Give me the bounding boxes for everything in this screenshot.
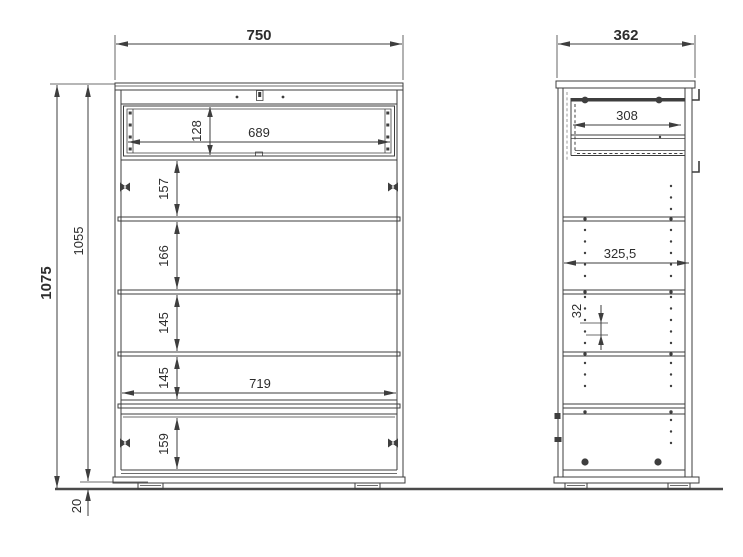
shelf-pin-hole bbox=[670, 430, 672, 432]
dim-label-drawer-height: 128 bbox=[189, 120, 204, 142]
shelf-pin-hole bbox=[584, 330, 586, 332]
shelf-board bbox=[563, 290, 685, 294]
dimension-section-5: 159 bbox=[156, 418, 180, 469]
shelf-pin-hole bbox=[584, 275, 586, 277]
dim-label-section-3: 145 bbox=[156, 312, 171, 334]
shelf-pin-hole bbox=[670, 252, 672, 254]
dimension-width: 750 bbox=[115, 27, 403, 80]
shelf-pin-hole bbox=[670, 275, 672, 277]
shelf-pin-hole bbox=[584, 342, 586, 344]
dim-label-hole-pitch: 32 bbox=[569, 304, 584, 318]
shelf-pin-hole bbox=[670, 419, 672, 421]
shelf-pin-hole bbox=[670, 330, 672, 332]
shelf-pin-hole bbox=[670, 442, 672, 444]
dim-label-section-1: 157 bbox=[156, 178, 171, 200]
shelf-pin-hole bbox=[584, 263, 586, 265]
dimension-total-height: 1075 bbox=[38, 84, 115, 488]
dimension-drawer-depth: 308 bbox=[573, 108, 681, 128]
shelf-pin-hole bbox=[670, 208, 672, 210]
drawer-slide-pins-left bbox=[129, 112, 132, 151]
clip-fitting-icon bbox=[120, 439, 130, 448]
shelf-pin-hole bbox=[670, 296, 672, 298]
rail-connector-pin bbox=[258, 92, 261, 97]
side-dimensions: 362 308 325,5 32 bbox=[557, 27, 695, 350]
dim-label-section-5: 159 bbox=[156, 433, 171, 455]
bottom-screw-icon bbox=[581, 458, 588, 465]
shelf-pin-holes bbox=[584, 185, 672, 444]
rail-screw-hole bbox=[236, 96, 239, 99]
shelf-pin-hole bbox=[670, 307, 672, 309]
dimension-section-1: 157 bbox=[156, 161, 180, 216]
shelf-pin-hole bbox=[584, 252, 586, 254]
shelf-board bbox=[118, 290, 400, 294]
shelf-pin-hole bbox=[670, 263, 672, 265]
shelf-pin-hole bbox=[670, 319, 672, 321]
shelf-board bbox=[118, 217, 400, 221]
side-plinth bbox=[554, 477, 699, 483]
dimension-drawer-height: 128 bbox=[189, 107, 213, 155]
drawer-screw-icon bbox=[656, 97, 663, 104]
dim-label-carcass-height: 1055 bbox=[71, 227, 86, 256]
drawer-dot bbox=[659, 136, 661, 138]
shelf-pin-hole bbox=[584, 319, 586, 321]
shelf-pin-hole bbox=[670, 373, 672, 375]
shelf-pin-hole bbox=[584, 307, 586, 309]
edge-fitting-icon bbox=[555, 413, 561, 419]
edge-fitting-icon bbox=[555, 437, 562, 442]
shelf-pin-hole bbox=[670, 240, 672, 242]
side-top-board bbox=[556, 81, 695, 88]
dim-label-drawer-depth: 308 bbox=[616, 108, 638, 123]
bottom-screw-icon bbox=[654, 458, 661, 465]
shelf-pin-hole bbox=[584, 373, 586, 375]
dim-label-interior-width: 719 bbox=[249, 376, 271, 391]
shelf-pin-hole bbox=[670, 185, 672, 187]
dim-label-drawer-width: 689 bbox=[248, 125, 270, 140]
dim-label-section-4: 145 bbox=[156, 367, 171, 389]
shelf-pin-hole bbox=[670, 342, 672, 344]
shelf-pin-hole bbox=[670, 362, 672, 364]
shelf-board bbox=[563, 217, 685, 221]
dimension-plinth-height: 20 bbox=[69, 489, 91, 516]
wall-hook-icon bbox=[692, 89, 699, 100]
dim-label-plinth-height: 20 bbox=[69, 499, 84, 513]
dimension-hole-pitch: 32 bbox=[569, 304, 608, 350]
shelf-pin-hole bbox=[584, 362, 586, 364]
dim-label-section-2: 166 bbox=[156, 245, 171, 267]
shelf-pin-hole bbox=[584, 240, 586, 242]
dim-label-interior-depth: 325,5 bbox=[604, 246, 637, 261]
shelf-board bbox=[563, 352, 685, 356]
clip-fitting-icon bbox=[388, 183, 398, 192]
front-view bbox=[113, 83, 405, 489]
dimension-carcass-height: 1055 bbox=[71, 85, 148, 482]
drawer-screw-icon bbox=[582, 97, 589, 104]
shelf-pin-hole bbox=[584, 296, 586, 298]
clip-fitting-icon bbox=[388, 439, 398, 448]
shelf-board bbox=[563, 404, 685, 408]
clip-fitting-icon bbox=[120, 183, 130, 192]
dim-label-total-height: 1075 bbox=[38, 266, 55, 299]
dimension-section-2: 166 bbox=[156, 222, 180, 289]
drawing-canvas: 750 1075 1055 20 128 bbox=[0, 0, 743, 557]
shelf-board bbox=[118, 404, 400, 408]
shelf-pin-hole bbox=[670, 196, 672, 198]
dim-label-width: 750 bbox=[246, 27, 271, 44]
front-plinth bbox=[113, 477, 405, 483]
side-drawer bbox=[571, 97, 685, 156]
dimension-interior-depth: 325,5 bbox=[564, 246, 689, 266]
dimension-drawer-width: 689 bbox=[128, 125, 390, 145]
dimension-section-3: 145 bbox=[156, 295, 180, 351]
wall-hook-icon bbox=[692, 161, 699, 172]
dim-label-depth: 362 bbox=[613, 27, 638, 44]
shelf-pin-hole bbox=[584, 229, 586, 231]
cabinet-technical-drawing: 750 1075 1055 20 128 bbox=[0, 0, 743, 557]
drawer-slide-pins-right bbox=[386, 112, 389, 151]
front-dimensions: 750 1075 1055 20 128 bbox=[38, 27, 403, 516]
shelf-pin-hole bbox=[584, 385, 586, 387]
dimension-depth: 362 bbox=[557, 27, 695, 78]
shelf-board bbox=[118, 352, 400, 356]
side-view bbox=[554, 81, 699, 489]
shelf-pin-hole bbox=[670, 229, 672, 231]
shelf-pin-hole bbox=[670, 385, 672, 387]
rail-screw-hole bbox=[282, 96, 285, 99]
